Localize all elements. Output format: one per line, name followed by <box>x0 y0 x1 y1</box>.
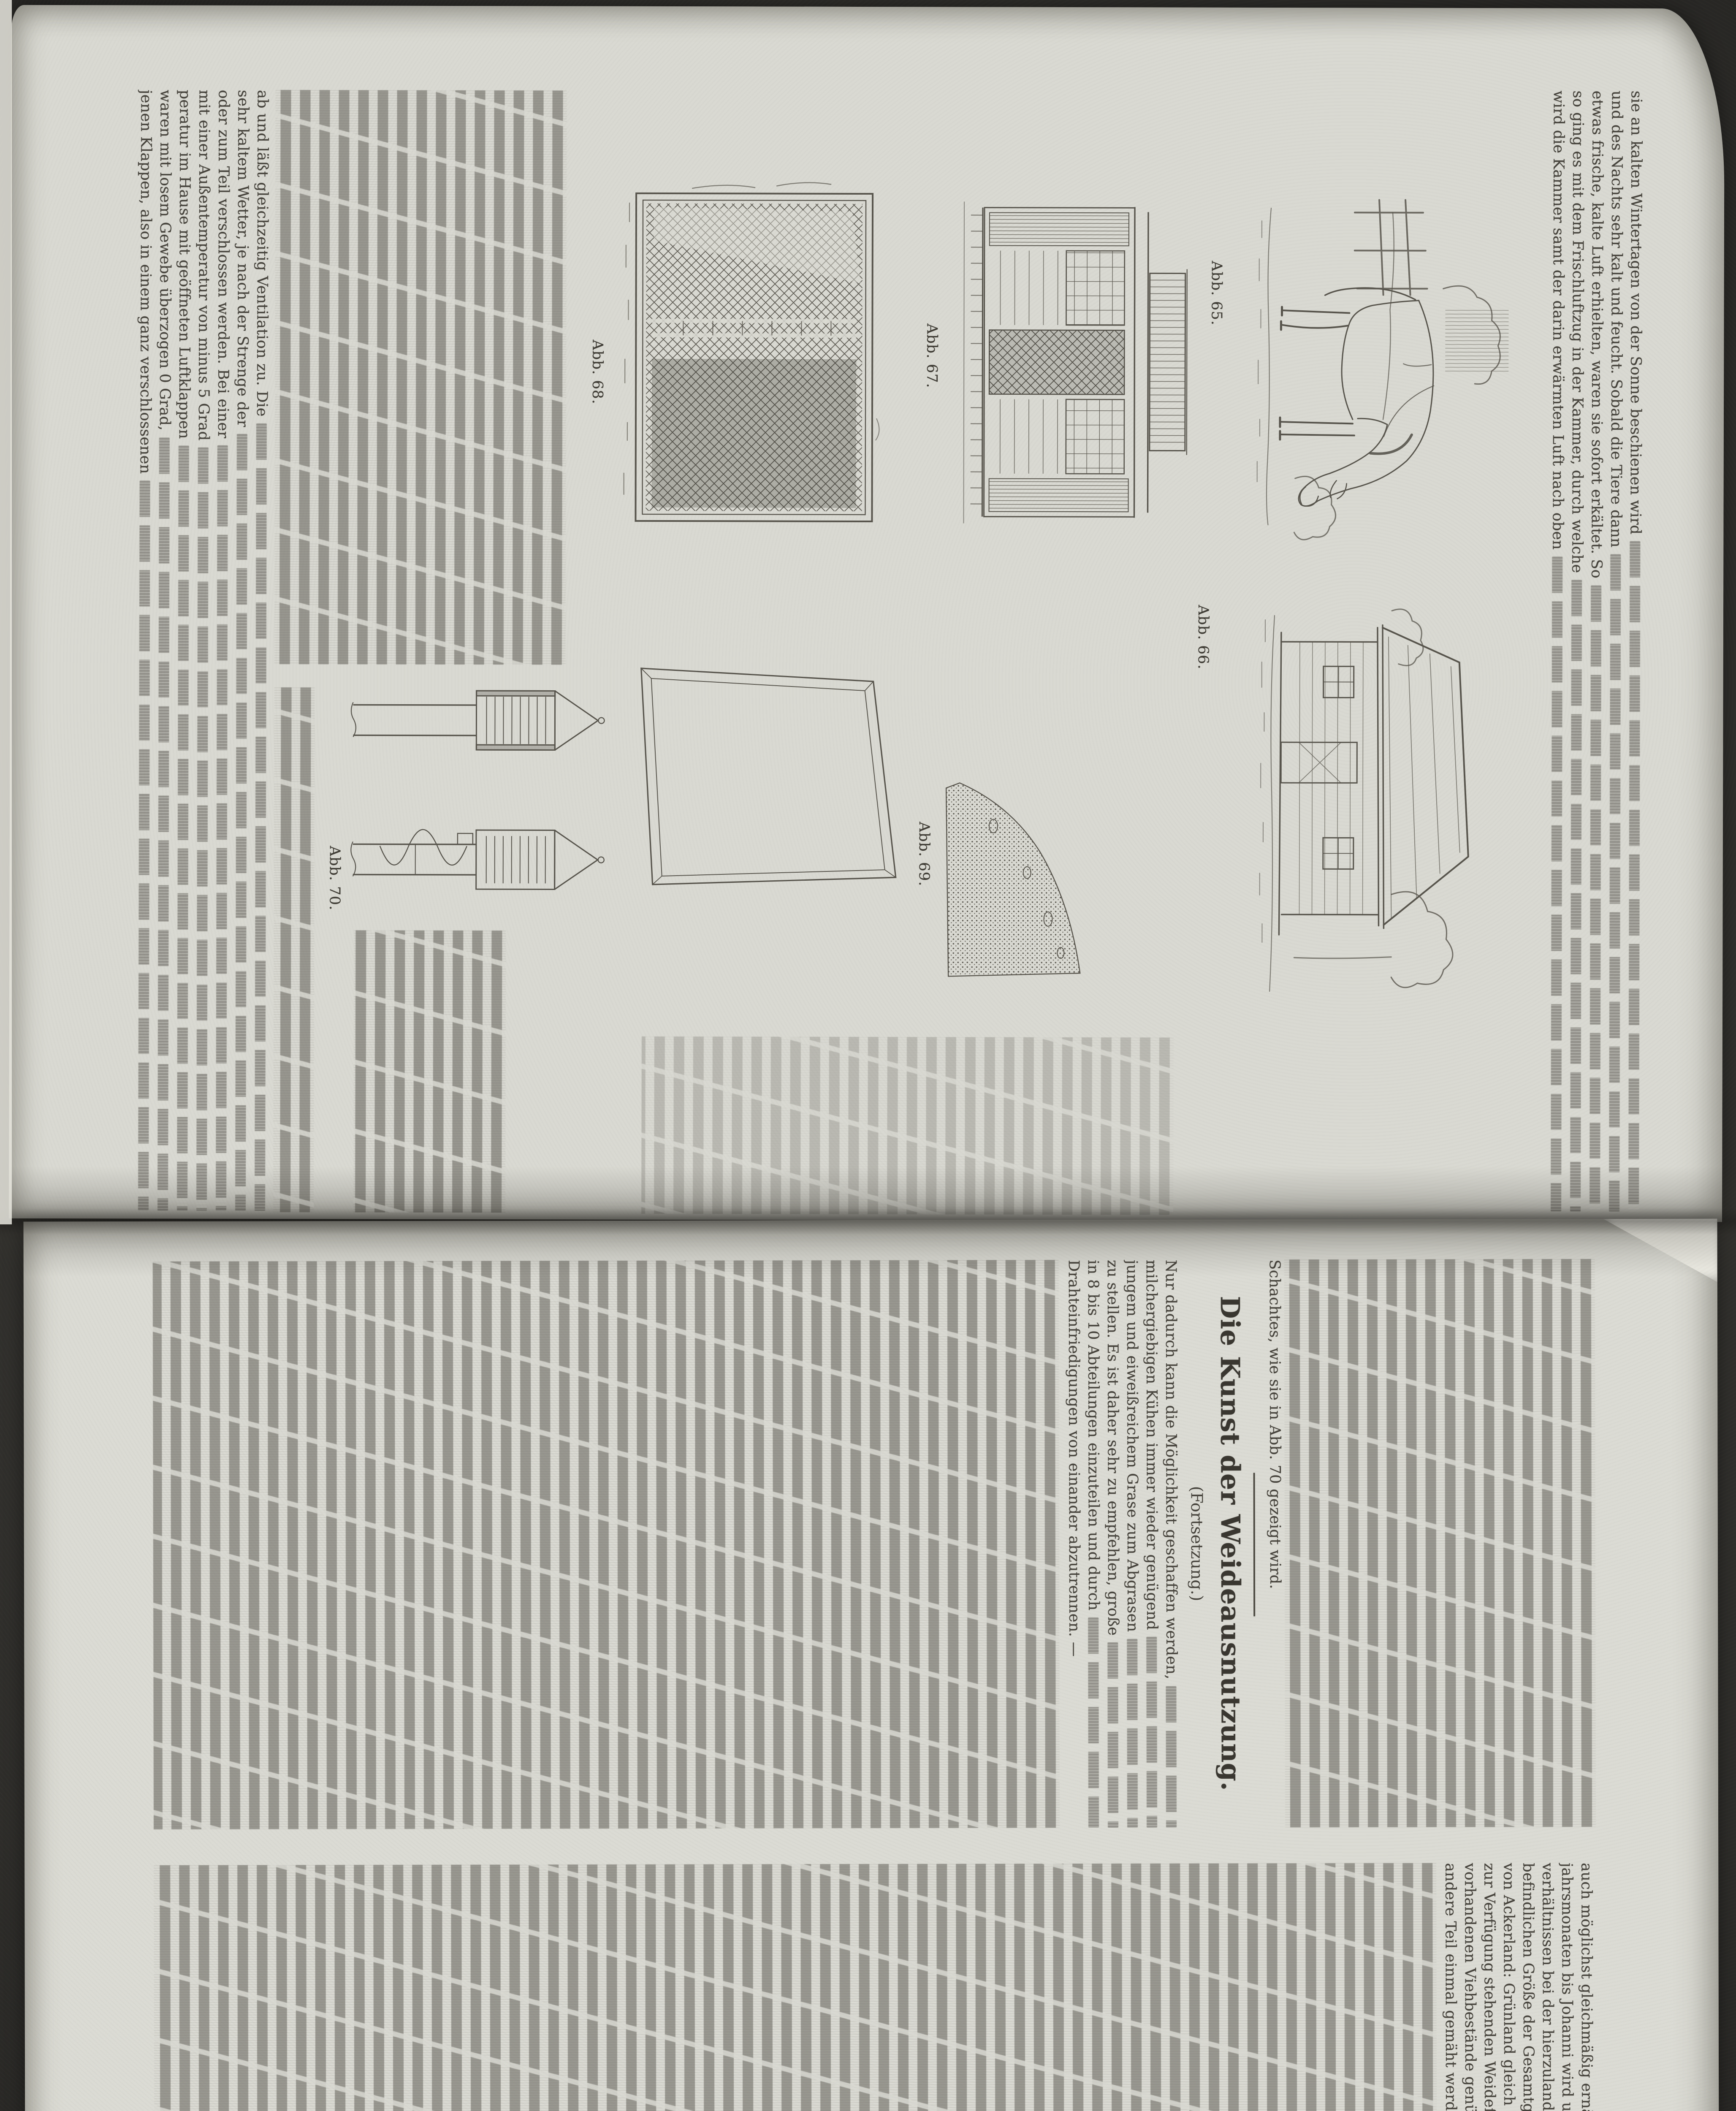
text-line: mit einer Außentemperatur von minus 5 Gr… <box>192 90 214 1211</box>
text-line: befindlichen Größe der Gesamtgrünlandsfl… <box>1518 1863 1538 2111</box>
text-line: Drahteinfriedigungen von einander abzutr… <box>1064 1260 1084 1828</box>
text-line: zu stellen. Es ist daher sehr zu empfehl… <box>1103 1260 1123 1828</box>
text-line: etwas frische, kalte Luft erhielten, war… <box>1585 91 1607 1212</box>
figure-abb69-sloping-frame-engraving <box>632 657 906 895</box>
text-line: und des Nachts sehr kalt und feucht. Sob… <box>1605 91 1627 1212</box>
text-line: Nur dadurch kann die Möglichkeit geschaf… <box>1161 1260 1181 1828</box>
previous-article-last-line: Schachtes, wie sie in Abb. 70 gezeigt wi… <box>1265 1259 1285 1827</box>
text-line: vorhandenen Viehbestände genügen, so daß… <box>1460 1863 1480 2111</box>
article-opening-paragraph: Nur dadurch kann die Möglichkeit geschaf… <box>1064 1260 1181 1828</box>
text-line: so ging es mit dem Frischluftzug in der … <box>1566 90 1588 1211</box>
scanned-journal-page: sie an kalten Wintertagen von der Sonne … <box>0 0 1736 2111</box>
text-line: sie an kalten Wintertagen von der Sonne … <box>1624 91 1646 1212</box>
article-subtitle: (Fortsetzung.) <box>1187 1260 1207 1828</box>
text-line: von Ackerland: Grünland gleich 1:1 — sch… <box>1499 1863 1519 2111</box>
left-page-top-paragraph: sie an kalten Wintertagen von der Sonne … <box>1546 90 1646 1211</box>
figure-caption-abb65: Abb. 65. <box>1208 261 1225 326</box>
left-page-column2-text-lower <box>273 687 315 1212</box>
left-page-showthrough-text <box>641 1037 1174 1215</box>
figure-abb65-horse-engraving <box>1238 183 1532 551</box>
text-line: zur Verfügung stehenden Weidefläche zur … <box>1479 1863 1500 2111</box>
section-divider-rule <box>1253 1473 1256 1616</box>
figure-caption-abb69: Abb. 69. <box>916 822 933 886</box>
article-title: Die Kunst der Weideausnutzung. <box>1215 1259 1246 1827</box>
figure-abb67-stable-front-engraving <box>952 195 1189 531</box>
right-page-column1-body-text <box>153 1260 1060 1829</box>
left-page-column1-text <box>274 90 567 665</box>
figure-abb70-vent-shaft-b-engraving <box>347 820 606 899</box>
figure-caption-abb70: Abb. 70. <box>326 846 343 910</box>
left-page-column2-text <box>353 930 506 1213</box>
figure-abb69-earth-section-engraving <box>939 775 1099 982</box>
journal-spread: sie an kalten Wintertagen von der Sonne … <box>0 0 1736 2111</box>
figure-abb66-hut-engraving <box>1216 603 1519 996</box>
text-line: waren mit losem Gewebe überzogen 0 Grad, <box>153 90 175 1210</box>
figure-abb68-mesh-front-engraving <box>617 182 882 535</box>
page-corner-curl <box>1603 1219 1717 1282</box>
figure-caption-abb67: Abb. 67. <box>923 323 940 388</box>
right-page-column2-top-paragraph: auch möglichst gleichmäßig ernährt werde… <box>1440 1863 1597 2111</box>
text-line: auch möglichst gleichmäßig ernährt werde… <box>1576 1863 1597 2111</box>
figure-caption-abb68: Abb. 68. <box>589 340 606 404</box>
text-line: jenen Klappen, also in einem ganz versch… <box>134 90 156 1210</box>
left-page: sie an kalten Wintertagen von der Sonne … <box>9 5 1725 1222</box>
text-line: verhältnissen bei der hierzulande in den… <box>1538 1863 1558 2111</box>
right-page-column2-body-text <box>154 1863 1437 2111</box>
text-line: peratur im Hause mit geöffneten Luftklap… <box>173 90 195 1211</box>
text-line: in 8 bis 10 Abteilungen einzuteilen und … <box>1083 1260 1104 1828</box>
text-line: jungem und eiweißreichem Grase zum Abgra… <box>1122 1260 1142 1828</box>
text-line: oder zum Teil verschlossen werden. Bei e… <box>212 90 233 1211</box>
left-page-bottom-paragraph: ab und läßt gleichzeitig Ventilation zu.… <box>134 90 272 1211</box>
right-page-column1-previous-article <box>1284 1259 1596 1827</box>
figure-caption-abb66: Abb. 66. <box>1195 605 1212 670</box>
text-line: andere Teil einmal gemäht werden kann. <box>1440 1863 1461 2111</box>
figure-abb70-vent-shaft-a-engraving <box>347 681 606 760</box>
paper-edge-strip <box>0 0 12 1224</box>
text-line: ab und läßt gleichzeitig Ventilation zu.… <box>250 90 272 1211</box>
text-line: sehr kaltem Wetter, je nach der Strenge … <box>231 90 253 1211</box>
right-page: Schachtes, wie sie in Abb. 70 gezeigt wi… <box>24 1219 1720 2111</box>
text-line: milchergiebigen Kühen immer wieder genüg… <box>1142 1260 1162 1828</box>
text-line: jahrsmonaten bis Johanni wird unter güns… <box>1557 1863 1577 2111</box>
text-line: wird die Kammer samt der darin erwärmten… <box>1546 90 1568 1211</box>
